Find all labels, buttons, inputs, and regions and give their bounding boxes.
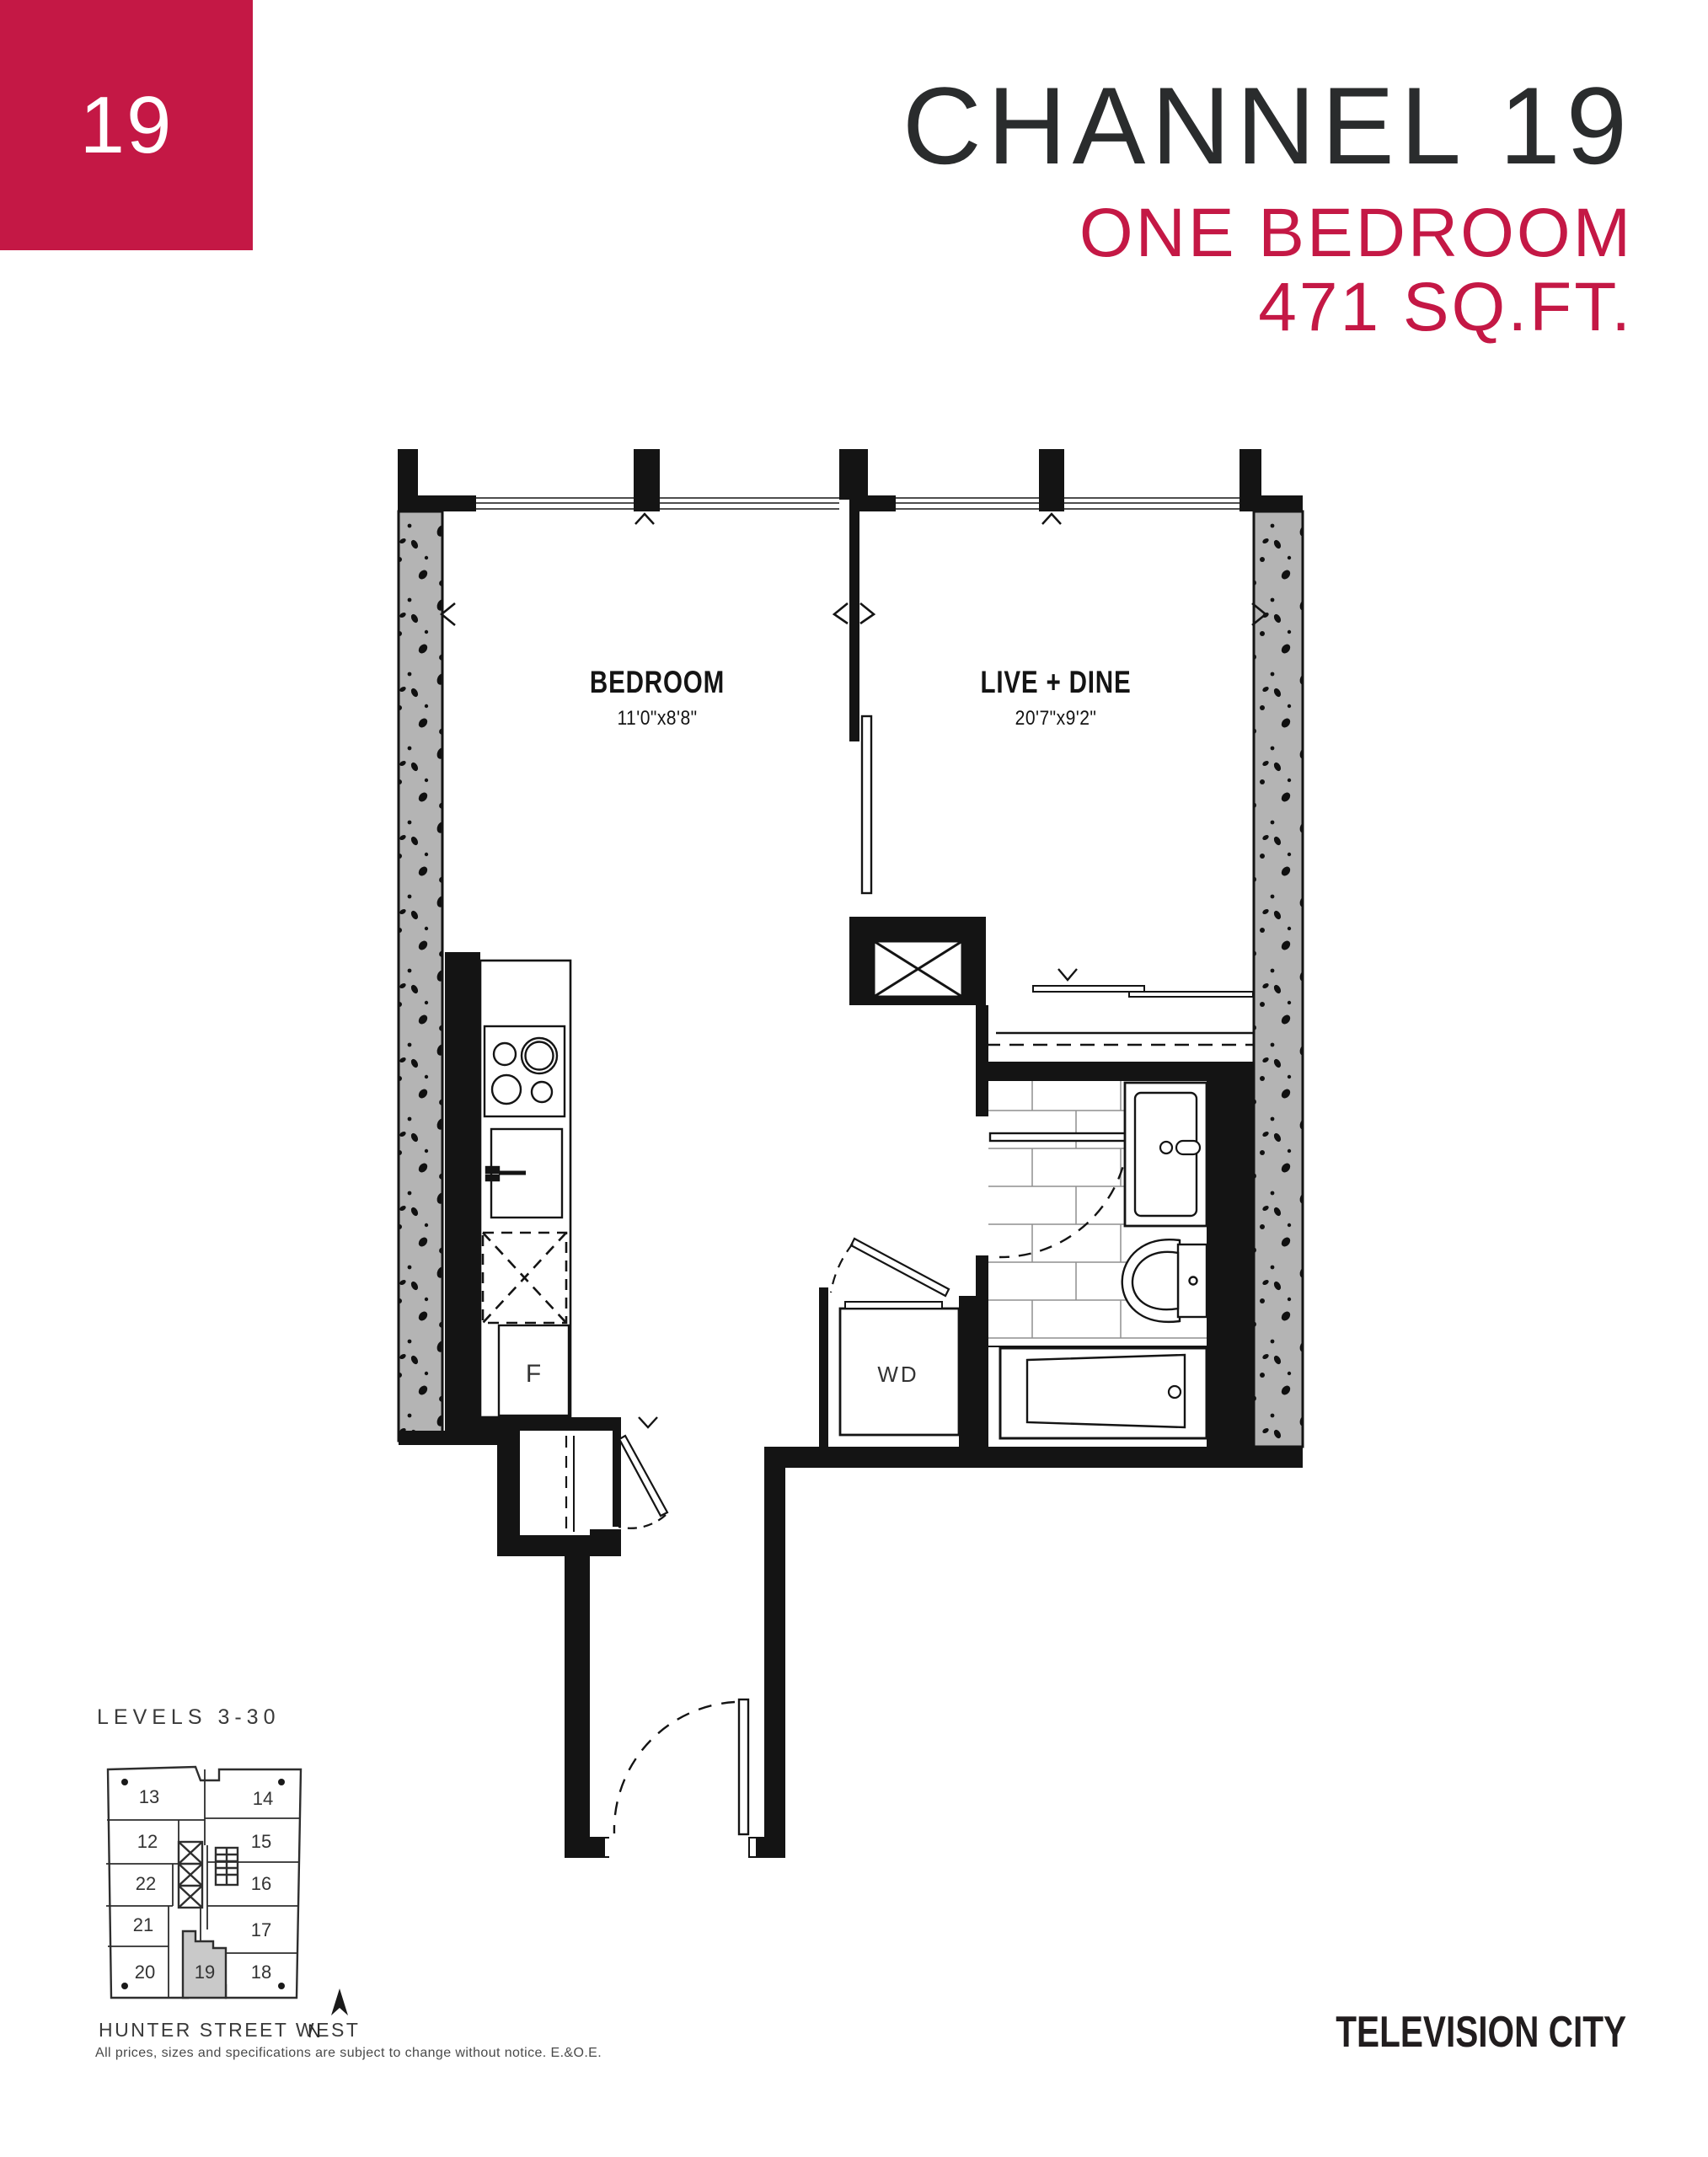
- livedine-label: LIVE + DINE: [980, 666, 1131, 700]
- keyplan-stairs: [216, 1848, 238, 1885]
- keyplan-drawing: 13 12 22 21 20 14 15 16 17 18 19: [51, 1736, 354, 2022]
- keyplan-unit-22: 22: [136, 1873, 156, 1894]
- keyplan-unit-13: 13: [139, 1786, 159, 1807]
- keyplan-unit-18: 18: [251, 1962, 271, 1983]
- north-label: N: [302, 2021, 327, 2042]
- fridge-label: F: [526, 1360, 541, 1388]
- bathroom: [976, 1005, 1254, 1447]
- keyplan-unit-12: 12: [137, 1831, 158, 1852]
- bathroom-door: [990, 1133, 1132, 1141]
- entry-door: [739, 1699, 748, 1834]
- bedroom-dims: 11'0"x8'8": [617, 707, 697, 730]
- entry-closet-door: [619, 1436, 667, 1516]
- partition-wall: [849, 495, 871, 893]
- keyplan-unit-21: 21: [133, 1914, 153, 1935]
- vanity-sink: [1125, 1083, 1207, 1226]
- laundry-door: [851, 1239, 949, 1296]
- keyplan-unit-15: 15: [251, 1831, 271, 1852]
- bathtub: [1000, 1348, 1207, 1438]
- disclaimer-text: All prices, sizes and specifications are…: [95, 2046, 602, 2061]
- keyplan-elevators: [179, 1842, 202, 1908]
- window-markers: [635, 514, 1061, 524]
- sliding-door: [862, 716, 871, 893]
- living-markers: [986, 969, 1254, 1045]
- keyplan-unit-14: 14: [253, 1788, 273, 1809]
- brand-logo: TELEVISION CITY: [1336, 2007, 1626, 2058]
- entry-closet: [497, 1417, 667, 1556]
- keyplan-unit-20: 20: [135, 1962, 155, 1983]
- brochure-page: 19 CHANNEL 19 ONE BEDROOM 471 SQ.FT.: [0, 0, 1708, 2157]
- entry-corridor: [565, 1468, 785, 1858]
- keyplan-unit-17: 17: [251, 1919, 271, 1940]
- toilet: [1122, 1239, 1207, 1322]
- fridge: F: [499, 1325, 569, 1416]
- living-closet-rods: [1033, 986, 1253, 997]
- washer-dryer-label: WD: [877, 1362, 918, 1387]
- keyplan-levels-label: LEVELS 3-30: [97, 1705, 281, 1730]
- shaft: [849, 917, 986, 1005]
- room-labels: BEDROOM 11'0"x8'8" LIVE + DINE 20'7"x9'2…: [590, 666, 1132, 729]
- keyplan-unit-16: 16: [251, 1873, 271, 1894]
- keyplan-unit-19: 19: [195, 1962, 215, 1983]
- north-arrow-icon: [331, 1988, 348, 2015]
- laundry-closet: WD: [819, 1239, 988, 1447]
- keyplan-street-label: HUNTER STREET WEST: [99, 2019, 284, 2042]
- south-wall: [764, 1447, 1303, 1468]
- bedroom-label: BEDROOM: [590, 666, 725, 700]
- livedine-dims: 20'7"x9'2": [1015, 707, 1097, 730]
